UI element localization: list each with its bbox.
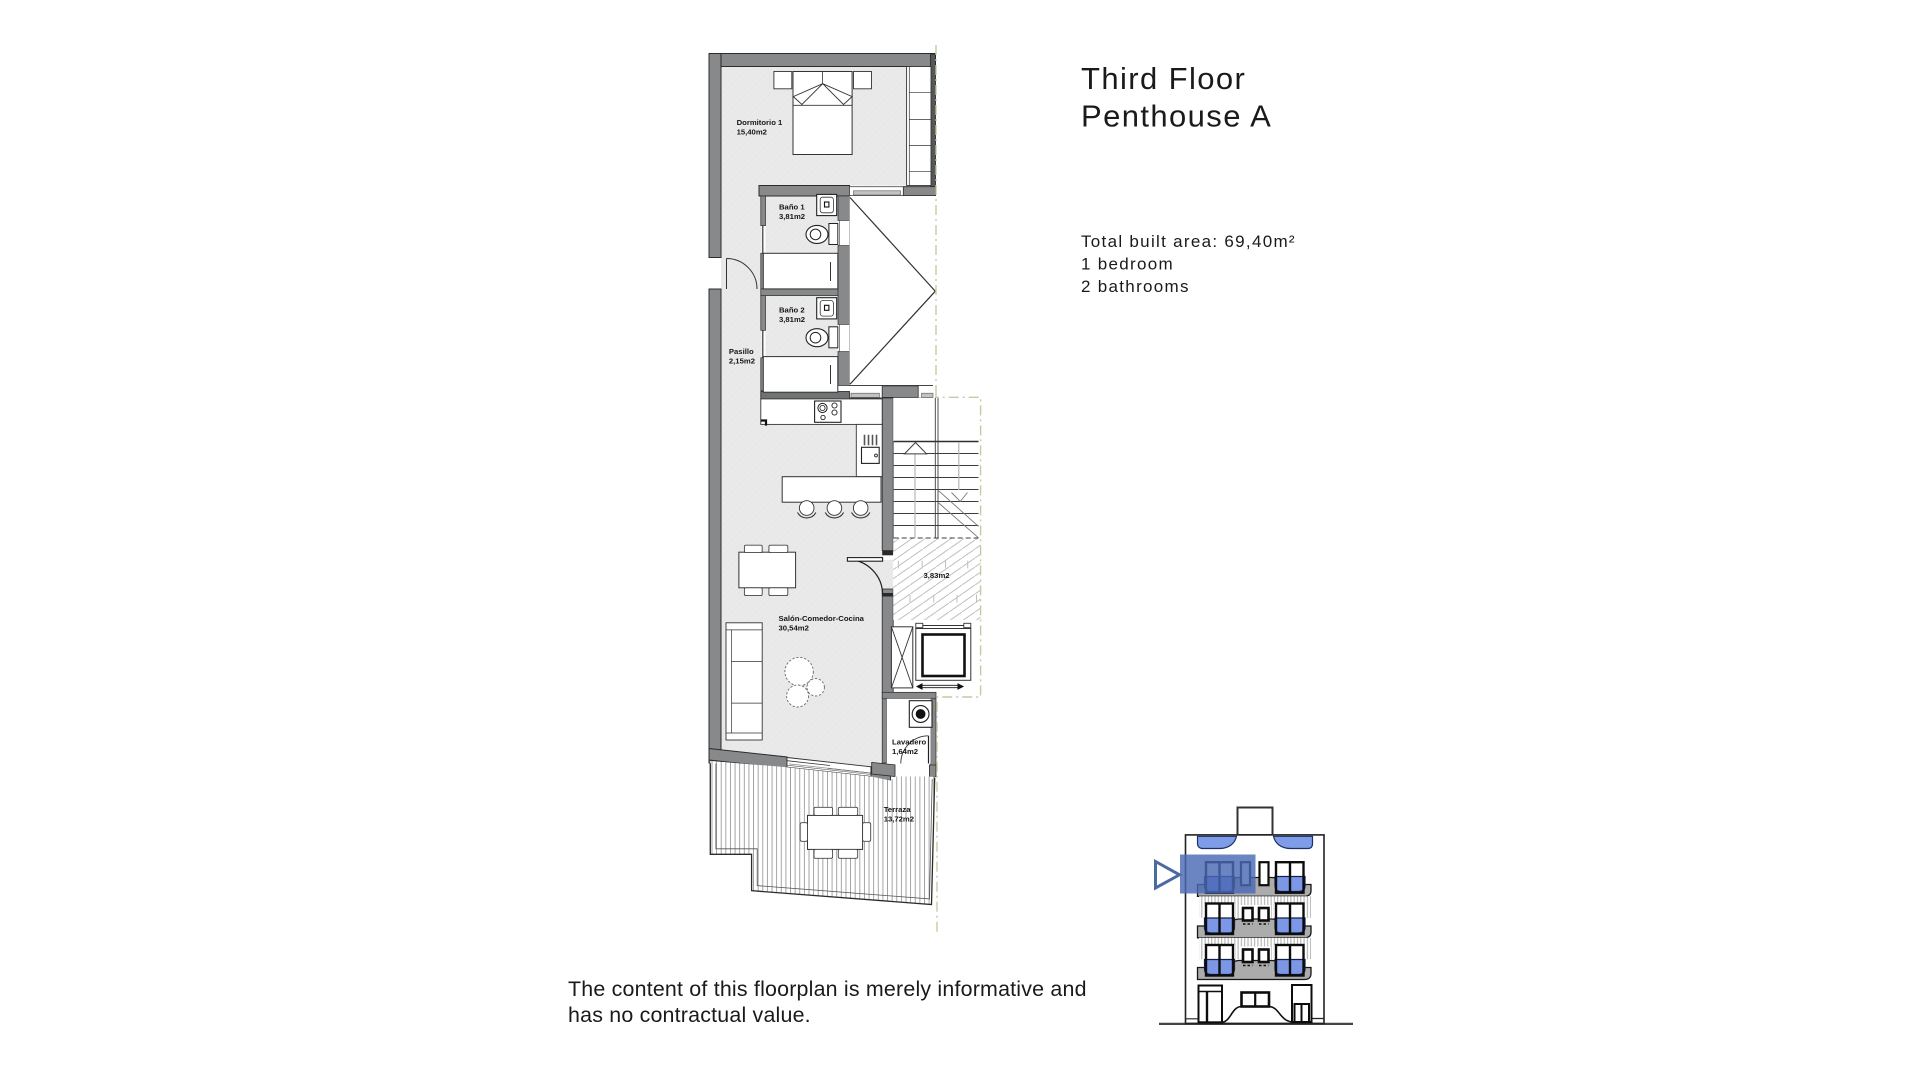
svg-text:has no contractual value.: has no contractual value. xyxy=(568,1003,811,1027)
svg-text:Third Floor: Third Floor xyxy=(1081,61,1246,96)
svg-text:Dormitorio 1: Dormitorio 1 xyxy=(737,118,783,127)
svg-text:Baño 2: Baño 2 xyxy=(779,306,805,315)
svg-text:Penthouse A: Penthouse A xyxy=(1081,99,1272,134)
svg-text:Terraza: Terraza xyxy=(884,805,912,814)
svg-text:13,72m2: 13,72m2 xyxy=(884,815,914,824)
svg-text:Salón-Comedor-Cocina: Salón-Comedor-Cocina xyxy=(779,614,865,623)
svg-text:Total built area: 69,40m²: Total built area: 69,40m² xyxy=(1081,232,1296,251)
svg-text:15,40m2: 15,40m2 xyxy=(737,128,767,137)
svg-text:3,83m2: 3,83m2 xyxy=(924,571,950,580)
svg-text:Lavadero: Lavadero xyxy=(892,738,926,747)
svg-text:The content of this floorplan: The content of this floorplan is merely … xyxy=(568,977,1087,1001)
svg-text:30,54m2: 30,54m2 xyxy=(779,624,809,633)
svg-text:Baño 1: Baño 1 xyxy=(779,203,805,212)
svg-text:1 bedroom: 1 bedroom xyxy=(1081,255,1174,274)
svg-text:2 bathrooms: 2 bathrooms xyxy=(1081,277,1190,296)
svg-text:1,64m2: 1,64m2 xyxy=(892,747,918,756)
svg-text:2,15m2: 2,15m2 xyxy=(729,357,755,366)
svg-text:3,81m2: 3,81m2 xyxy=(779,315,805,324)
svg-text:Pasillo: Pasillo xyxy=(729,347,754,356)
svg-text:3,81m2: 3,81m2 xyxy=(779,212,805,221)
